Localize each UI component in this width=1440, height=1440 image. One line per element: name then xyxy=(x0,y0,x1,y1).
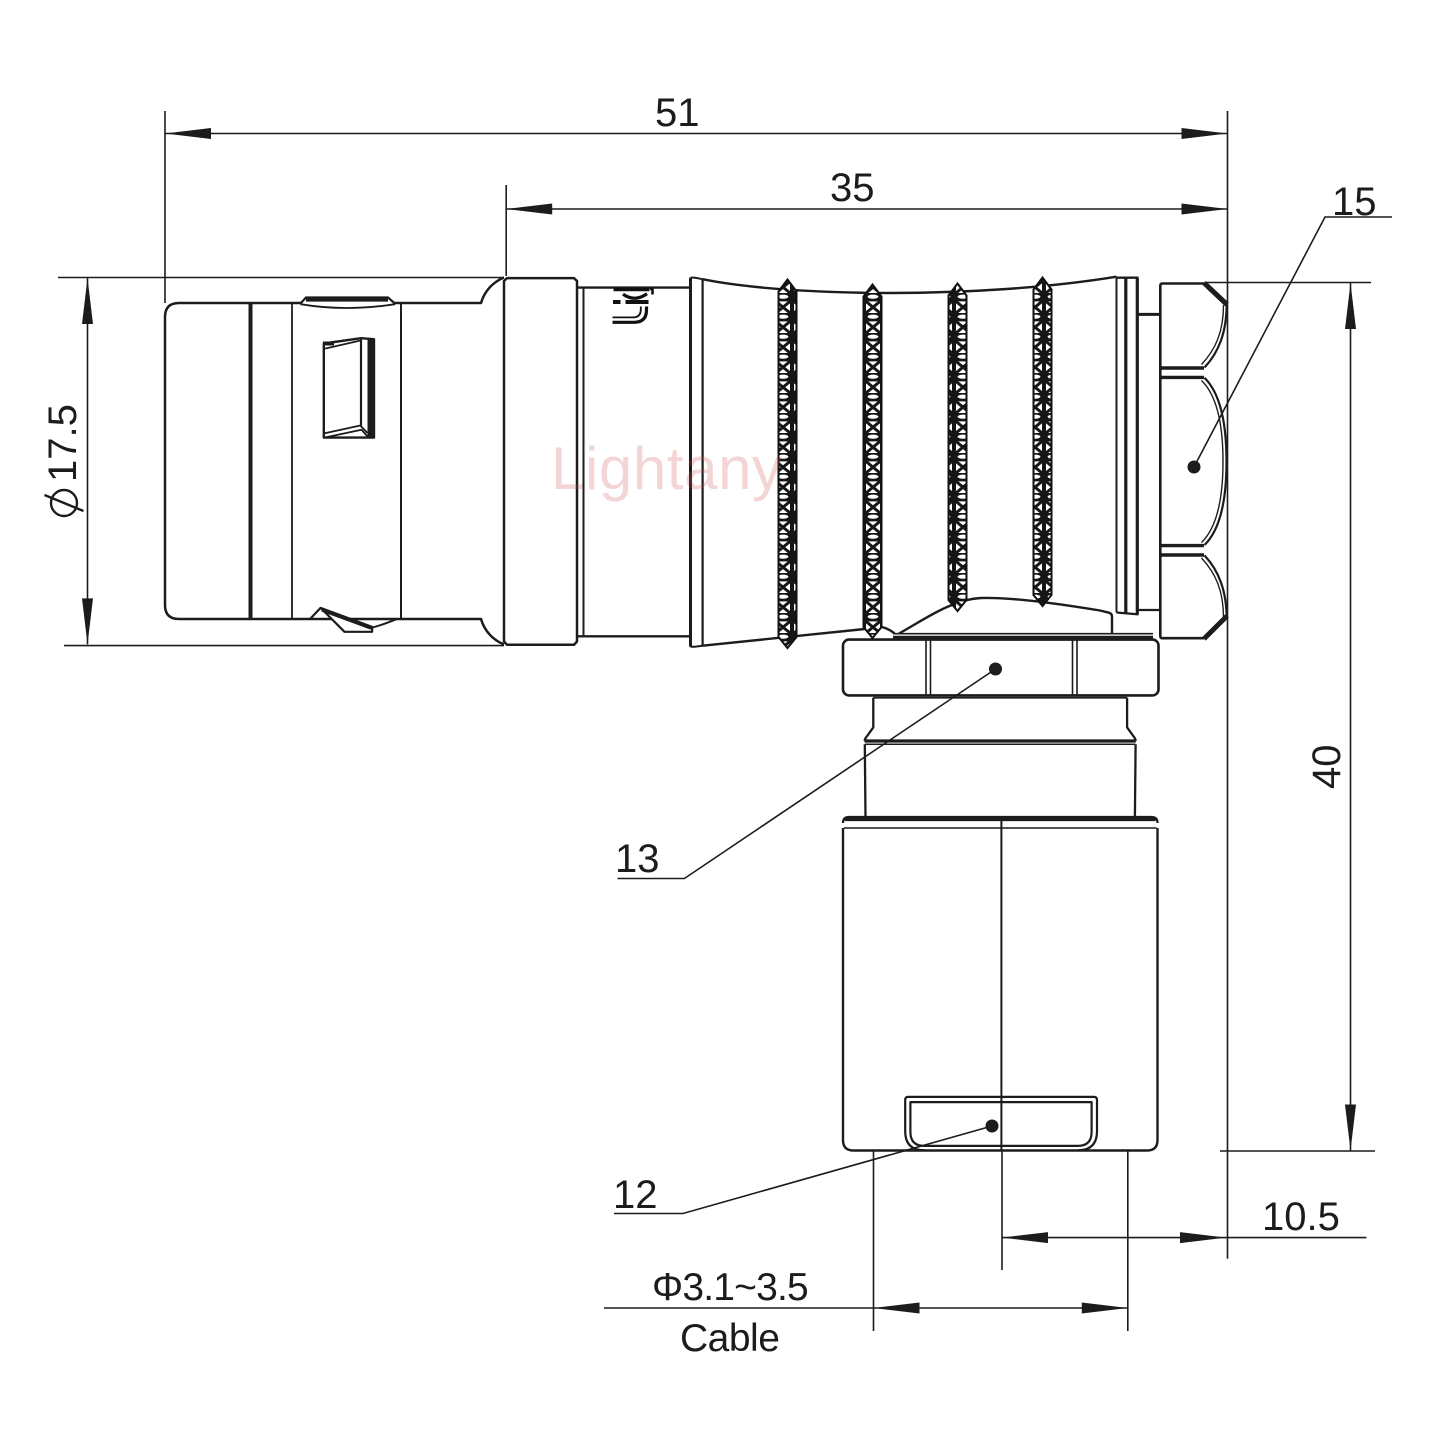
svg-text:17.5: 17.5 xyxy=(41,404,85,482)
svg-text:Φ3.1~3.5: Φ3.1~3.5 xyxy=(652,1266,808,1309)
svg-text:51: 51 xyxy=(655,91,700,135)
svg-text:Lightany: Lightany xyxy=(551,435,783,502)
svg-text:12: 12 xyxy=(613,1173,658,1217)
svg-text:Cable: Cable xyxy=(680,1317,779,1360)
svg-text:40: 40 xyxy=(1305,745,1349,790)
svg-text:15: 15 xyxy=(1332,180,1377,224)
svg-text:13: 13 xyxy=(615,837,660,881)
svg-text:10.5: 10.5 xyxy=(1262,1195,1340,1239)
svg-text:35: 35 xyxy=(830,166,875,210)
